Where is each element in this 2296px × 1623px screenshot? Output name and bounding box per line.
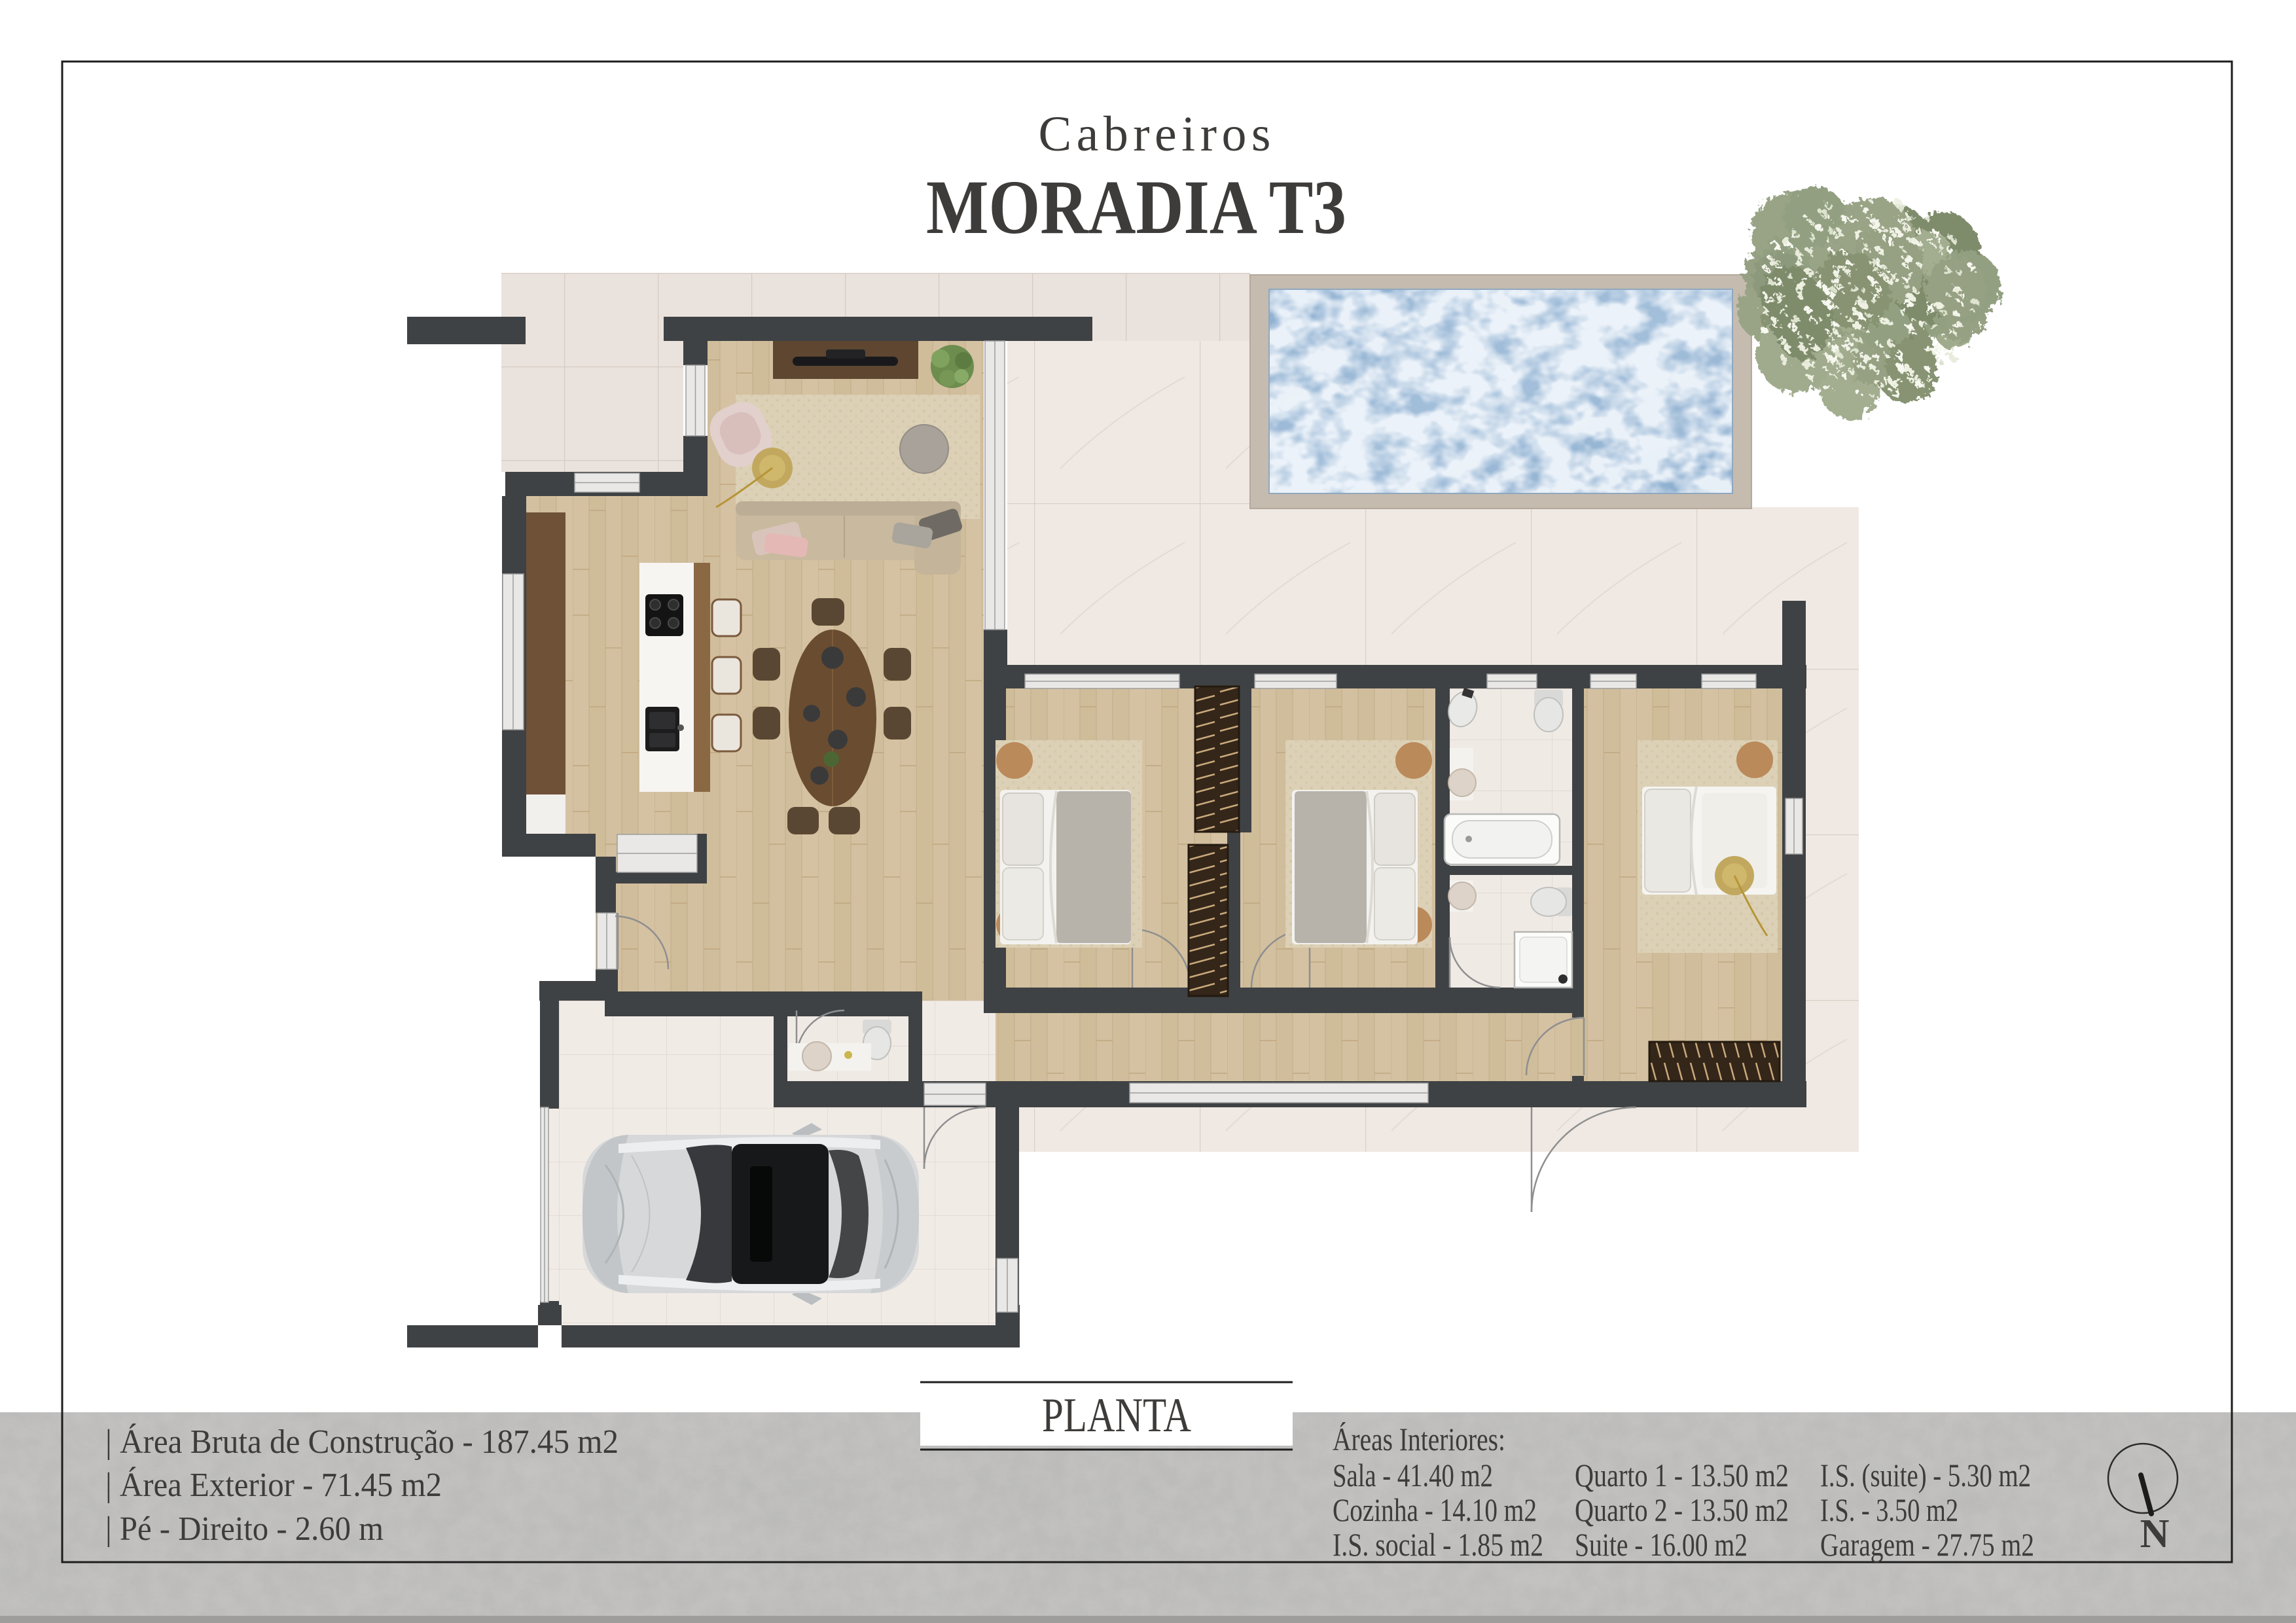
svg-text:PLANTA: PLANTA <box>1042 1389 1191 1442</box>
svg-text:Áreas Interiores:: Áreas Interiores: <box>1333 1421 1505 1457</box>
svg-text:MORADIA T3: MORADIA T3 <box>926 164 1346 250</box>
svg-text:| Área Exterior - 71.45 m2: | Área Exterior - 71.45 m2 <box>105 1466 442 1504</box>
svg-text:I.S. - 3.50 m2: I.S. - 3.50 m2 <box>1820 1491 1958 1528</box>
svg-text:Suite - 16.00 m2: Suite - 16.00 m2 <box>1575 1526 1748 1563</box>
svg-text:Quarto 1 - 13.50 m2: Quarto 1 - 13.50 m2 <box>1575 1457 1789 1493</box>
svg-text:Sala - 41.40 m2: Sala - 41.40 m2 <box>1333 1457 1493 1493</box>
svg-text:I.S. social - 1.85 m2: I.S. social - 1.85 m2 <box>1333 1526 1543 1563</box>
svg-text:| Pé - Direito - 2.60 m: | Pé - Direito - 2.60 m <box>105 1510 384 1548</box>
svg-text:Quarto 2 - 13.50 m2: Quarto 2 - 13.50 m2 <box>1575 1491 1789 1528</box>
svg-text:Cozinha - 14.10 m2: Cozinha - 14.10 m2 <box>1333 1491 1537 1528</box>
svg-text:I.S. (suite) - 5.30 m2: I.S. (suite) - 5.30 m2 <box>1820 1457 2031 1493</box>
svg-text:Cabreiros: Cabreiros <box>1039 107 1271 162</box>
svg-text:| Área Bruta de Construção - 1: | Área Bruta de Construção - 187.45 m2 <box>105 1423 619 1461</box>
svg-text:Garagem - 27.75 m2: Garagem - 27.75 m2 <box>1820 1526 2034 1563</box>
svg-text:N: N <box>2140 1512 2170 1556</box>
